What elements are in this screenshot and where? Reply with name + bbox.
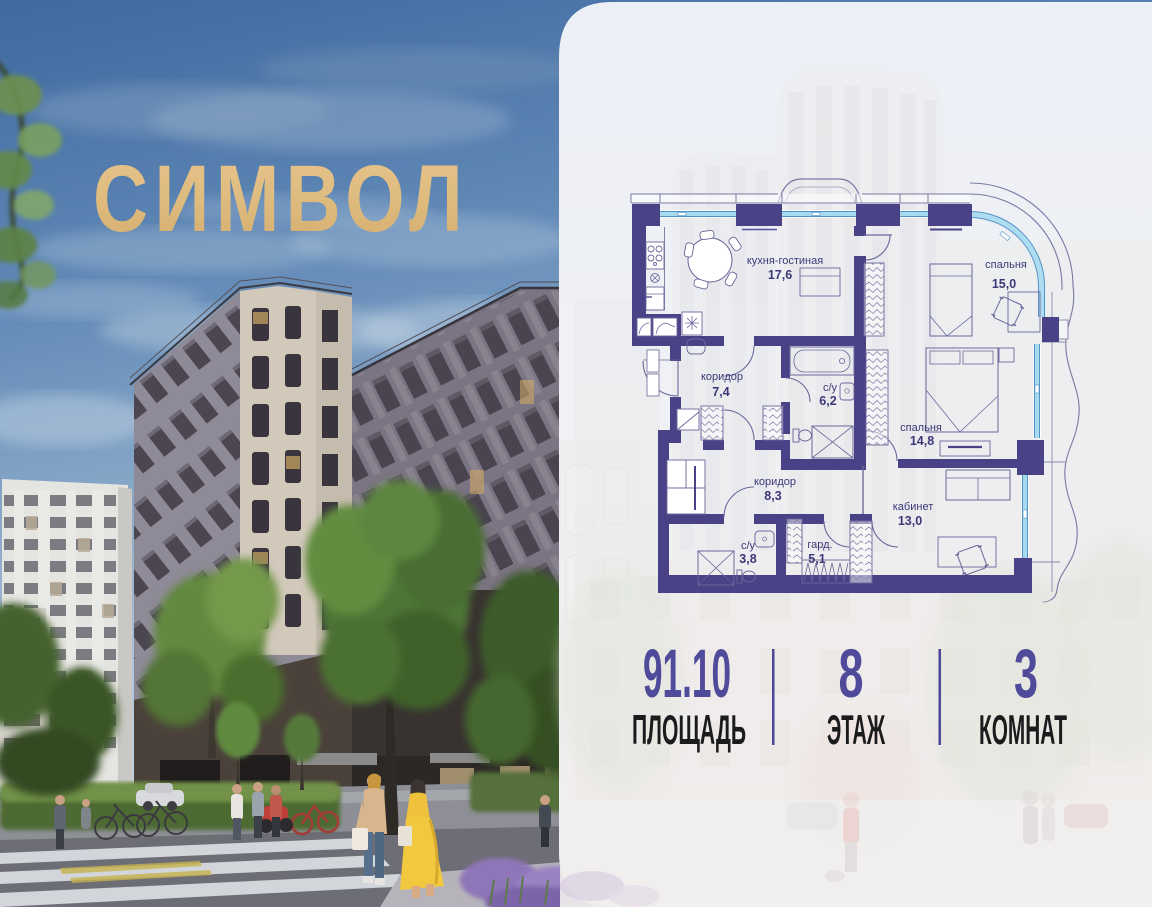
svg-text:13,0: 13,0	[898, 514, 922, 528]
svg-text:кабинет: кабинет	[893, 501, 933, 513]
svg-text:коридор: коридор	[754, 476, 796, 488]
svg-text:7,4: 7,4	[712, 385, 729, 399]
svg-text:3: 3	[1014, 635, 1038, 712]
svg-text:6,2: 6,2	[819, 394, 836, 408]
svg-text:кухня-гостиная: кухня-гостиная	[747, 255, 823, 267]
svg-text:8: 8	[839, 635, 864, 712]
svg-text:КОМНАТ: КОМНАТ	[979, 706, 1067, 753]
svg-text:3,8: 3,8	[739, 552, 756, 566]
svg-text:5,1: 5,1	[808, 552, 825, 566]
svg-text:91.10: 91.10	[643, 635, 731, 712]
svg-text:СИМВОЛ: СИМВОЛ	[93, 146, 469, 252]
svg-text:15,0: 15,0	[992, 277, 1016, 291]
svg-text:ПЛОЩАДЬ: ПЛОЩАДЬ	[632, 706, 746, 753]
svg-text:с/у: с/у	[823, 382, 838, 394]
svg-text:спальня: спальня	[985, 259, 1027, 271]
svg-text:коридор: коридор	[701, 371, 743, 383]
svg-text:8,3: 8,3	[764, 489, 781, 503]
svg-text:спальня: спальня	[900, 422, 942, 434]
svg-text:14,8: 14,8	[910, 434, 934, 448]
svg-text:гард.: гард.	[807, 539, 832, 551]
svg-text:17,6: 17,6	[768, 268, 792, 282]
svg-text:с/у: с/у	[741, 540, 756, 552]
svg-text:ЭТАЖ: ЭТАЖ	[827, 706, 885, 753]
